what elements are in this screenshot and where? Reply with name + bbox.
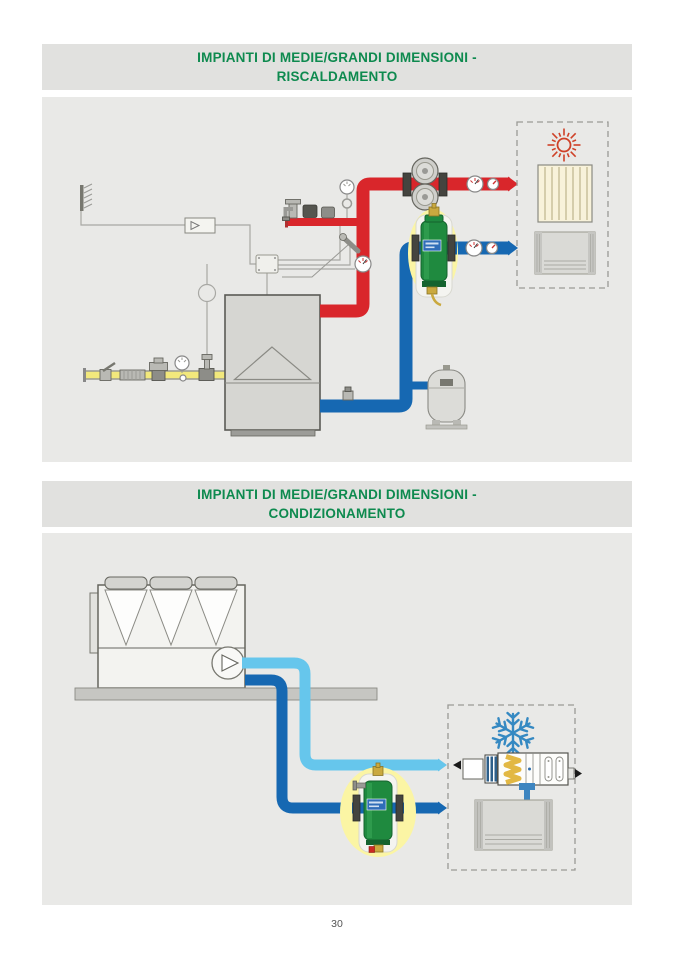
pressure-gauge-icon — [488, 179, 499, 190]
section-title-line1: IMPIANTI DI MEDIE/GRANDI DIMENSIONI - — [197, 485, 477, 504]
shutoff-device-icon — [199, 285, 216, 302]
thermometer-icon — [355, 256, 371, 272]
air-dirt-separator-icon — [340, 763, 416, 857]
conditioning-diagram — [42, 533, 632, 905]
section-title-line2: RISCALDAMENTO — [277, 67, 398, 86]
safety-relief-valve-icon — [283, 200, 301, 221]
air-handling-unit-icon — [453, 753, 582, 800]
air-out-arrow-icon — [453, 761, 461, 770]
outdoor-sensor-icon — [80, 184, 92, 211]
fan-coil-icon — [535, 232, 595, 274]
conditioning-diagram-panel — [42, 533, 632, 905]
section-title-line2: CONDIZIONAMENTO — [269, 504, 406, 523]
heating-diagram — [42, 97, 632, 462]
snowflake-icon — [493, 713, 533, 753]
section-header-conditioning: IMPIANTI DI MEDIE/GRANDI DIMENSIONI - CO… — [42, 481, 632, 527]
cooling-loads-box — [448, 705, 582, 870]
section-title-line1: IMPIANTI DI MEDIE/GRANDI DIMENSIONI - — [197, 48, 477, 67]
chiller-base-platform — [75, 688, 377, 700]
section-header-heating: IMPIANTI DI MEDIE/GRANDI DIMENSIONI - RI… — [42, 44, 632, 90]
junction-box-icon — [256, 255, 278, 273]
sun-icon — [548, 129, 581, 162]
gas-pressure-regulator-icon — [150, 358, 168, 381]
fan-coil-icon — [475, 800, 552, 850]
controller-icon — [185, 218, 215, 233]
heating-diagram-panel — [42, 97, 632, 462]
drain-valve-icon — [343, 387, 353, 400]
pressure-gauge-icon — [340, 180, 354, 218]
chiller-icon — [90, 577, 245, 688]
twin-pump-icon — [403, 158, 447, 210]
pressure-switch-icon — [303, 205, 335, 218]
boiler-icon — [225, 295, 320, 436]
temperature-probe-icon — [340, 234, 359, 252]
gas-flex-joint-icon — [120, 370, 145, 380]
thermometer-icon — [467, 176, 483, 192]
thermometer-icon — [466, 240, 482, 256]
air-in-arrow-icon — [575, 769, 582, 778]
dirt-separator-icon — [408, 204, 458, 306]
gas-line — [83, 355, 225, 383]
gas-solenoid-valve-icon — [199, 355, 214, 381]
expansion-vessel-icon — [411, 365, 467, 429]
pressure-gauge-icon — [487, 243, 498, 254]
heating-loads-box — [517, 122, 608, 288]
radiator-icon — [538, 165, 592, 222]
pump-icon — [212, 647, 244, 679]
page-number: 30 — [42, 918, 632, 930]
